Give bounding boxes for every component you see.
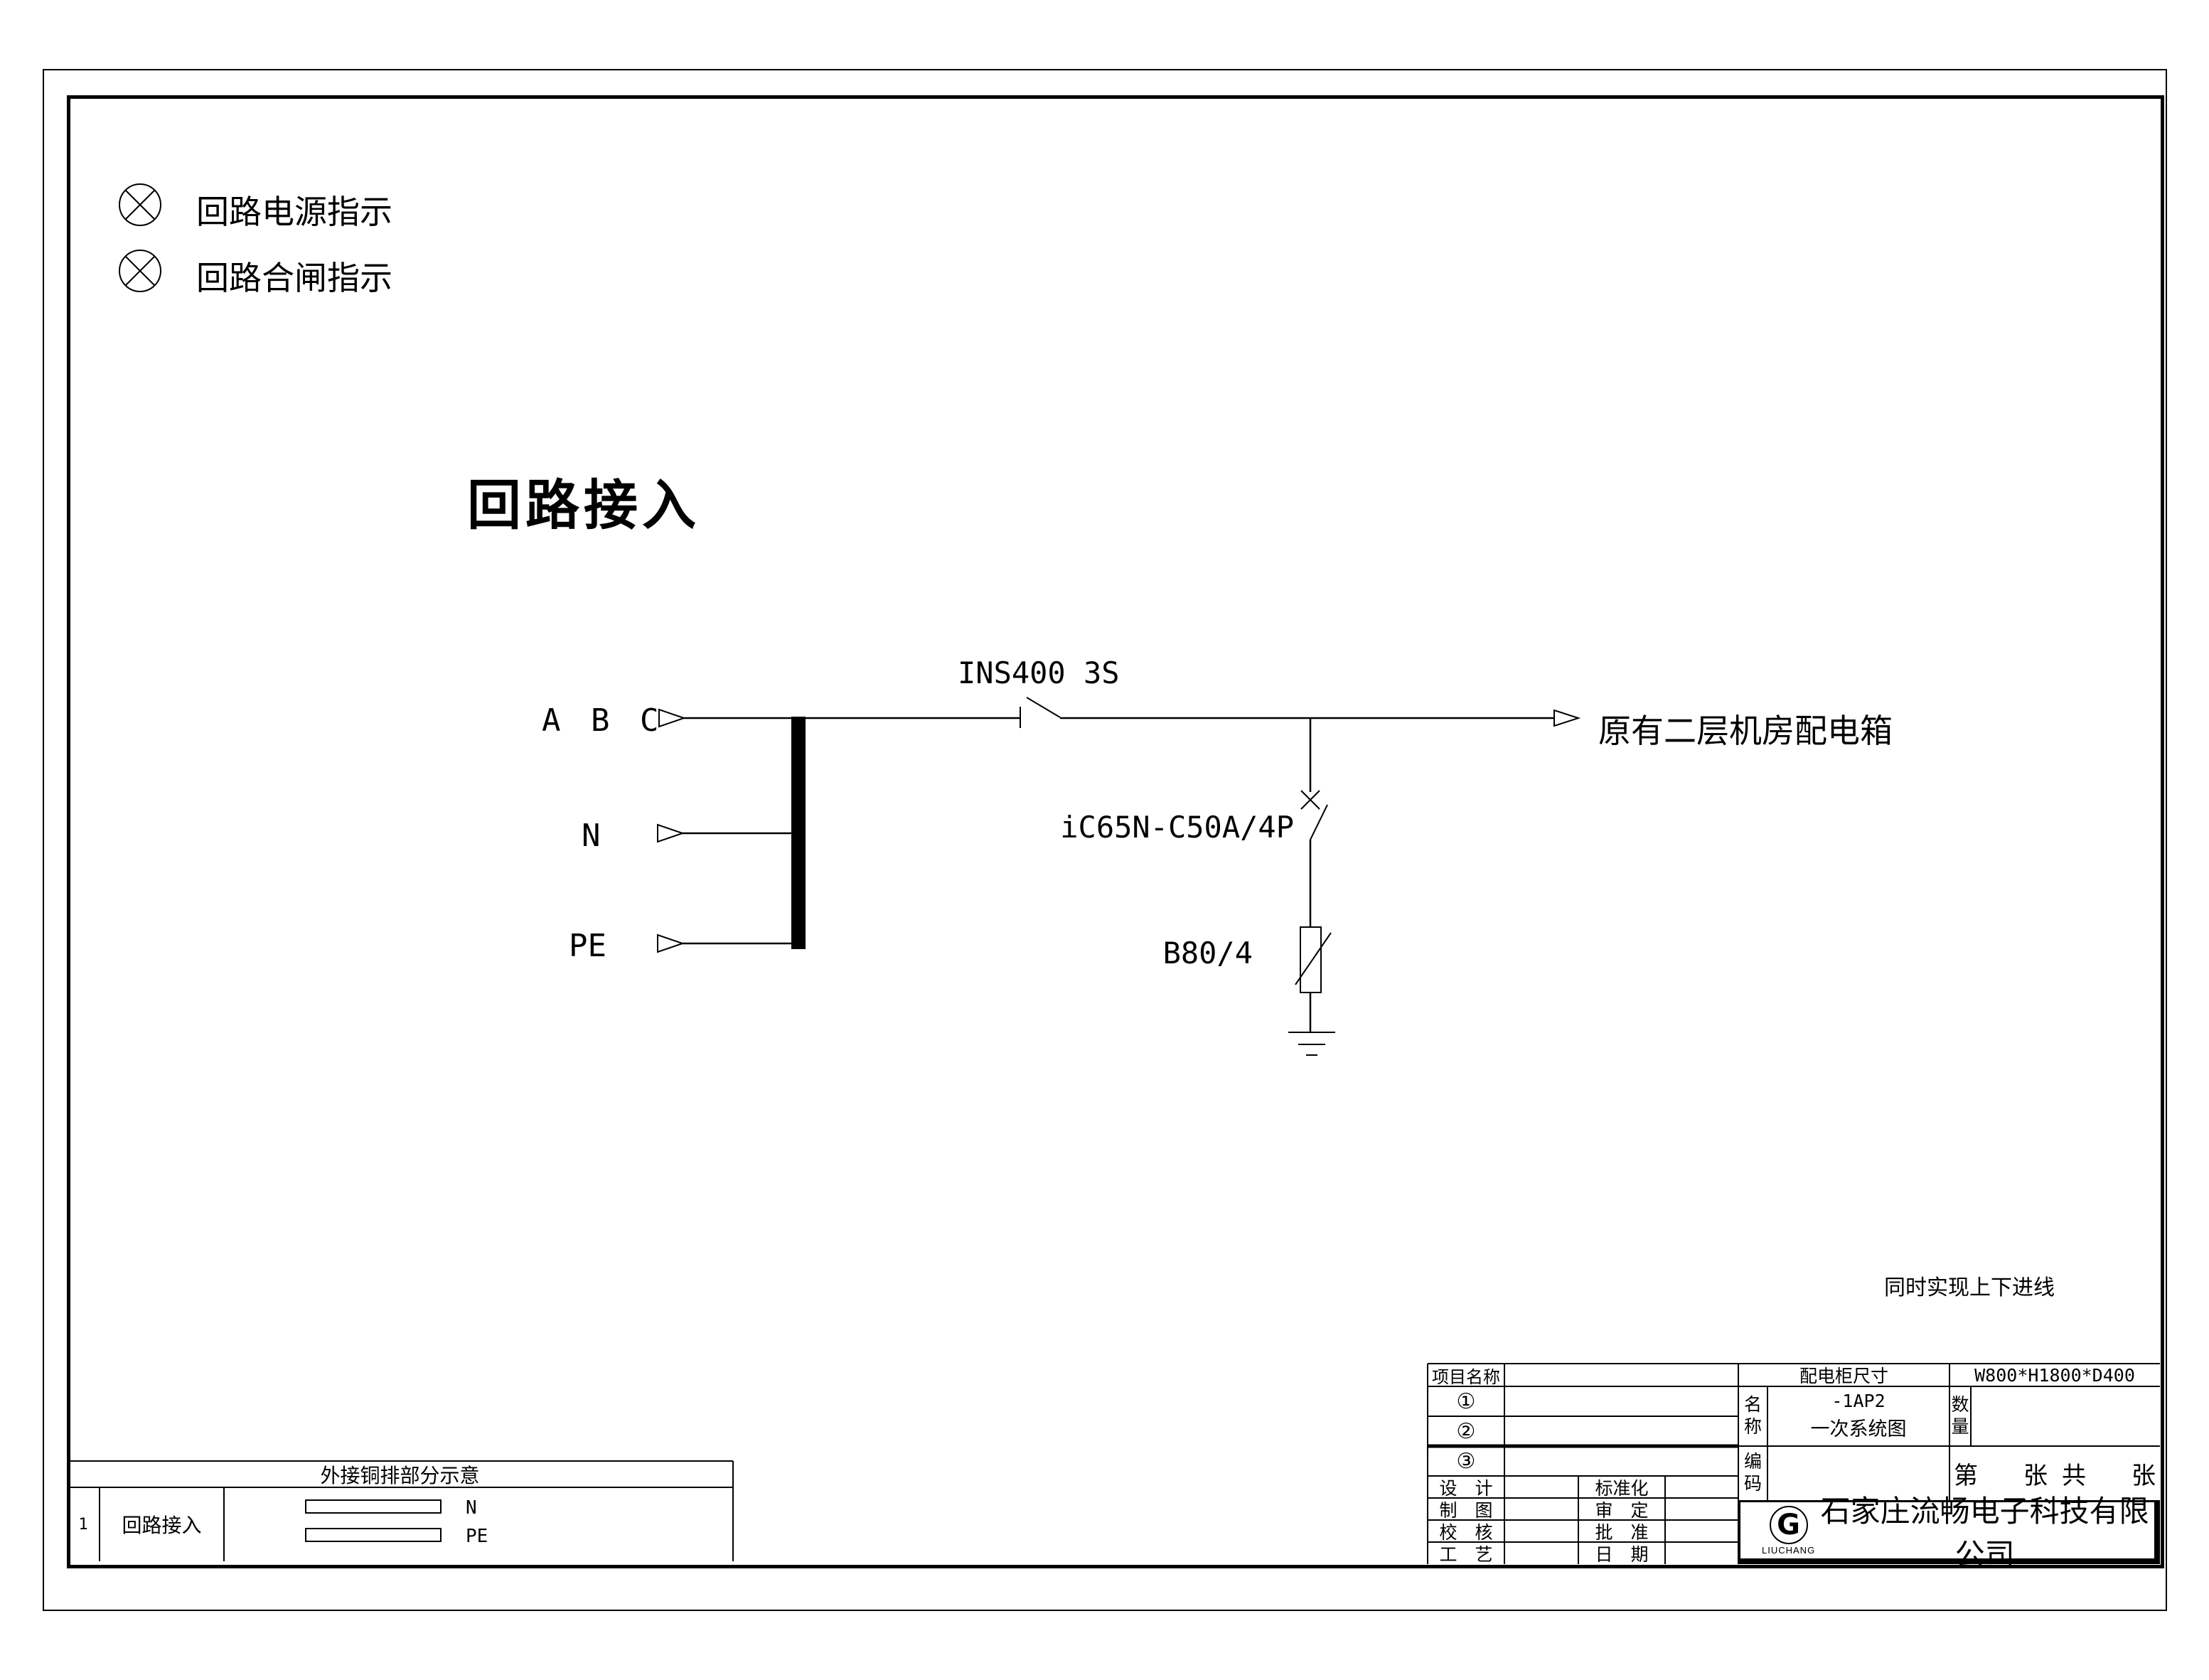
isolator-label: INS400 3S bbox=[958, 656, 1120, 690]
outgoing-label: 原有二层机房配电箱 bbox=[1598, 705, 1893, 752]
sheet-word: 共 bbox=[2062, 1456, 2086, 1491]
busbar bbox=[791, 717, 806, 949]
item-row-2: ② bbox=[1428, 1416, 1504, 1446]
quantity-label-char: 数 bbox=[1951, 1394, 1969, 1416]
phase-label: A B C bbox=[542, 702, 664, 739]
indicator-label: 回路电源指示 bbox=[196, 186, 392, 233]
phase-arrow-icon bbox=[659, 710, 791, 727]
spd-label: B80/4 bbox=[1163, 936, 1253, 970]
drawing-sheet: 回路电源指示 回路合闸指示 回路接入 A B C N PE INS400 3S … bbox=[0, 0, 2209, 1680]
name-label-char: 名 bbox=[1744, 1394, 1762, 1416]
project-name-label: 项目名称 bbox=[1428, 1364, 1504, 1386]
pe-arrow-icon bbox=[658, 935, 791, 952]
copper-bar-n-label: N bbox=[466, 1497, 477, 1519]
ground-icon bbox=[1288, 1032, 1335, 1055]
breaker-symbol bbox=[1301, 718, 1327, 927]
sign-row-approve: 批 准 bbox=[1578, 1520, 1665, 1542]
circuit-title: 回路接入 bbox=[467, 461, 700, 540]
outgoing-arrow-icon bbox=[1554, 710, 1578, 726]
code-label-char: 编 bbox=[1744, 1451, 1762, 1473]
quantity-label-char: 量 bbox=[1951, 1416, 1969, 1438]
note-label: 同时实现上下进线 bbox=[1884, 1270, 2055, 1301]
sign-row-review: 审 定 bbox=[1578, 1498, 1665, 1520]
isolator-switch-symbol bbox=[806, 697, 1554, 728]
panel-code: -1AP2 bbox=[1831, 1388, 1885, 1416]
name-value: -1AP2 一次系统图 bbox=[1767, 1386, 1949, 1446]
copper-bar-pe bbox=[306, 1529, 441, 1541]
code-label: 编 码 bbox=[1738, 1446, 1767, 1500]
busbar-table-title: 外接铜排部分示意 bbox=[67, 1461, 733, 1487]
sheet-word: 第 bbox=[1954, 1456, 1978, 1491]
breaker-label: iC65N-C50A/4P bbox=[1060, 810, 1294, 845]
busbar-table-row-label: 回路接入 bbox=[100, 1487, 224, 1561]
quantity-label: 数 量 bbox=[1949, 1386, 1971, 1446]
indicator-label: 回路合闸指示 bbox=[196, 252, 392, 299]
spd-symbol bbox=[1295, 927, 1331, 1032]
sign-row-design: 设 计 bbox=[1428, 1476, 1504, 1498]
cabinet-size-label: 配电柜尺寸 bbox=[1738, 1364, 1949, 1386]
company-logo-icon: G bbox=[1770, 1506, 1808, 1544]
company-logo-caption: LIUCHANG bbox=[1762, 1545, 1815, 1556]
code-label-char: 码 bbox=[1744, 1473, 1762, 1495]
company-box: G LIUCHANG 石家庄流畅电子科技有限公司 bbox=[1738, 1500, 2160, 1564]
drawing-type: 一次系统图 bbox=[1811, 1415, 1907, 1445]
sheet-word: 张 bbox=[2132, 1456, 2156, 1491]
company-logo: G LIUCHANG bbox=[1762, 1506, 1815, 1556]
item-row-3: ③ bbox=[1428, 1446, 1504, 1476]
sign-row-standard: 标准化 bbox=[1578, 1476, 1665, 1498]
neutral-arrow-icon bbox=[658, 825, 791, 842]
sign-row-process: 工 艺 bbox=[1428, 1542, 1504, 1564]
sign-row-draw: 制 图 bbox=[1428, 1498, 1504, 1520]
indicator-lamp-icon bbox=[119, 250, 161, 291]
sheet-word: 张 bbox=[2023, 1456, 2048, 1491]
name-label: 名 称 bbox=[1738, 1386, 1767, 1446]
item-row-1: ① bbox=[1428, 1386, 1504, 1416]
neutral-label: N bbox=[582, 818, 601, 854]
busbar-table-row-no: 1 bbox=[67, 1487, 100, 1561]
copper-bar-n bbox=[306, 1500, 441, 1513]
cabinet-size-value: W800*H1800*D400 bbox=[1949, 1364, 2160, 1386]
company-name: 石家庄流畅电子科技有限公司 bbox=[1815, 1487, 2154, 1574]
indicator-lamp-icon bbox=[119, 184, 161, 225]
copper-bar-pe-label: PE bbox=[466, 1526, 488, 1547]
sign-row-check: 校 核 bbox=[1428, 1520, 1504, 1542]
pe-label: PE bbox=[569, 928, 606, 964]
sign-row-date: 日 期 bbox=[1578, 1542, 1665, 1564]
name-label-char: 称 bbox=[1744, 1416, 1762, 1438]
